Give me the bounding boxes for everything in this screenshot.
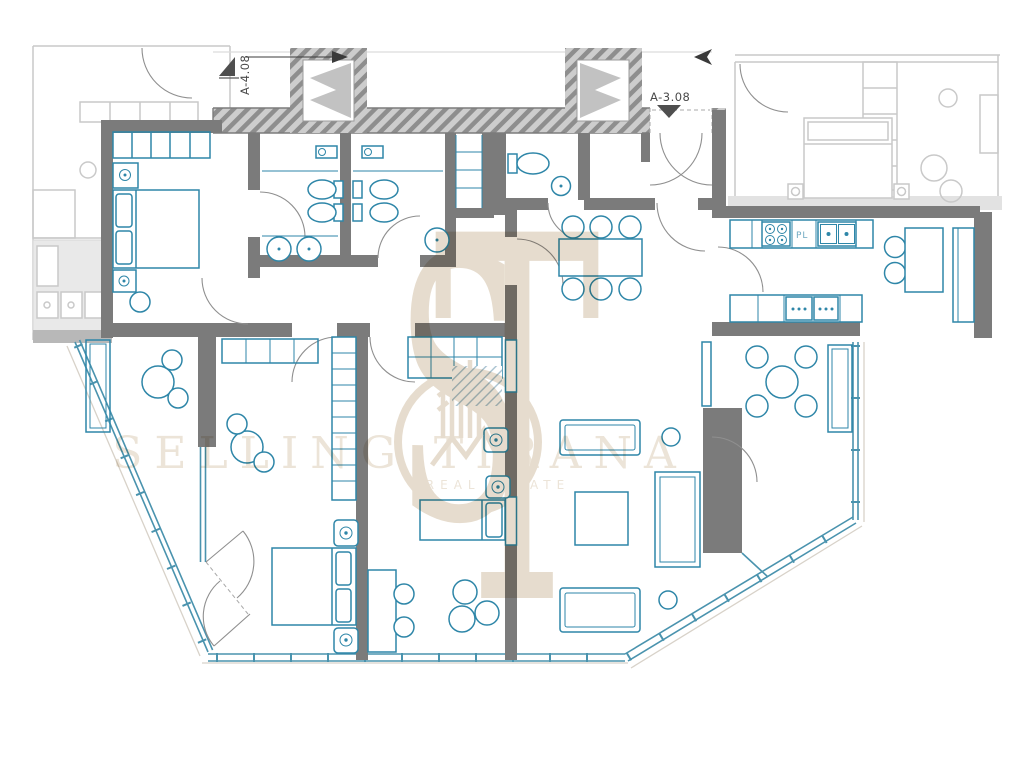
- appliance-icon: [786, 297, 812, 320]
- breakfast-nook: [885, 228, 975, 322]
- adjacent-left-door-arc-icon: [142, 48, 192, 98]
- bedroom2-wardrobe-top: [222, 339, 318, 363]
- kitchen-fittings: PL: [730, 220, 974, 322]
- wall-kitchen-right: [974, 212, 992, 338]
- kitchen-counter-top: PL: [730, 220, 873, 248]
- bath2-toilet-icon: [353, 180, 398, 199]
- bedroom2-nightstand-bottom: [334, 628, 358, 653]
- wall-living-balcony-pillar: [703, 408, 742, 553]
- bedroom2-furniture: [222, 337, 358, 653]
- door-kitchen-arc-icon: [718, 247, 763, 292]
- hob-icon: [762, 222, 790, 246]
- balcony-door-threshold: [206, 562, 248, 614]
- appliance-icon: [814, 297, 838, 320]
- bath2-shower-icon: [362, 146, 383, 158]
- adjacent-unit-right: [728, 55, 1002, 210]
- adjacent-right-door-arc-icon: [740, 64, 788, 112]
- bedroom1-nightstand-top: [113, 163, 138, 188]
- watermark-wordmark: SELLING TIRANA: [112, 428, 688, 479]
- adjacent-right-sideboard: [980, 95, 998, 153]
- adjacent-left-bottom-wall: [33, 330, 112, 343]
- desk-chair-icon: [394, 617, 414, 637]
- wall-kitchen-top: [712, 206, 980, 218]
- adjacent-right-bed: [788, 118, 909, 199]
- section-marker-left: A-4.08: [219, 55, 252, 95]
- section-label-top: A-3.08: [650, 90, 690, 104]
- balcony-right-glass-return: [742, 553, 768, 577]
- floor-plan-svg: PL: [0, 0, 1024, 768]
- bathroom1-fixtures: [262, 146, 343, 261]
- door-bath1-arc-icon: [260, 192, 305, 237]
- wall-entrance-right: [712, 110, 726, 212]
- bath2-bidet-icon: [353, 203, 398, 222]
- door-bedroom2-arc-icon: [292, 337, 337, 382]
- bedroom1-stool-icon: [130, 292, 150, 312]
- hob-label: PL: [796, 231, 808, 241]
- adjacent-right-table-icon: [921, 155, 947, 181]
- kitchen-counter-bottom: [730, 295, 862, 322]
- section-label-left: A-4.08: [238, 55, 252, 95]
- balcony-left-table-set1: [142, 350, 188, 408]
- watermark-monogram-t: T: [433, 131, 602, 717]
- adjacent-right-chair-icon: [939, 89, 957, 107]
- bedroom2-bed: [272, 548, 356, 625]
- balcony-right-table-set: [746, 346, 817, 417]
- adjacent-left-wardrobe: [80, 102, 198, 122]
- bedroom1-wardrobe: [113, 132, 210, 158]
- stool-icon: [885, 237, 906, 258]
- adjacent-left-cabinet: [33, 190, 75, 238]
- door-bedroom1-arc-icon: [202, 278, 248, 324]
- bedroom2-nightstand-top: [334, 520, 358, 546]
- side-table2-icon: [659, 591, 677, 609]
- bench: [953, 228, 974, 322]
- bedroom1-nightstand-bottom: [113, 270, 136, 292]
- wall-bedroom2-3-divider: [356, 337, 368, 660]
- glass-right-vertical: [853, 342, 858, 520]
- bath1-shower-icon: [316, 146, 337, 158]
- bedroom1-bed: [113, 190, 199, 268]
- dining-chair-icon: [619, 216, 641, 238]
- elevator-shaft-left: [290, 48, 367, 133]
- door-entrance-arc2-icon: [660, 133, 712, 185]
- breakfast-table: [905, 228, 943, 292]
- wall-entry-stub: [641, 133, 650, 162]
- door-balcony-left-arc2-icon: [203, 581, 250, 646]
- adjacent-left-fixture-icon: [80, 162, 96, 178]
- floor-plan-page: PL: [0, 0, 1024, 768]
- tv-sideboard: [655, 472, 700, 567]
- bedroom1-furniture: [113, 132, 210, 312]
- wall-kitchen-bottom: [712, 322, 860, 336]
- section-triangle-left-icon: [219, 57, 235, 76]
- bath1-toilet-icon: [308, 180, 343, 199]
- balcony-right-planter: [828, 345, 852, 432]
- stool-icon: [885, 263, 906, 284]
- door-hall-dining-arc-icon: [657, 203, 705, 251]
- dining-chair-icon: [619, 278, 641, 300]
- elevator-shaft-right: [565, 48, 642, 133]
- window-living-side: [702, 342, 711, 406]
- double-sink-icon: [818, 222, 856, 246]
- door-entrance-arc1-icon: [650, 133, 702, 185]
- wall-dining-top-stub: [698, 198, 712, 210]
- bath1-bidet-icon: [308, 203, 343, 222]
- watermark-tagline: REAL ESTATE: [426, 478, 570, 492]
